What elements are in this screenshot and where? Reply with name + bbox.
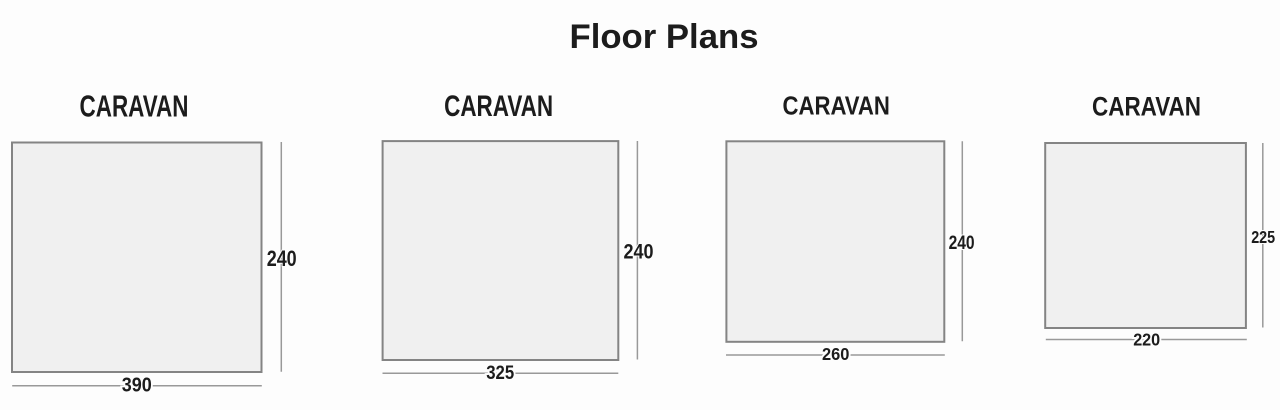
svg-text:240: 240 (949, 233, 975, 254)
svg-text:CARAVAN: CARAVAN (1092, 91, 1201, 122)
svg-text:CARAVAN: CARAVAN (782, 90, 890, 120)
svg-text:220: 220 (1133, 329, 1160, 349)
svg-text:225: 225 (1251, 227, 1275, 247)
svg-text:240: 240 (624, 238, 654, 263)
svg-text:CARAVAN: CARAVAN (444, 90, 553, 123)
svg-text:Floor Plans: Floor Plans (570, 18, 759, 56)
svg-text:240: 240 (267, 246, 297, 271)
svg-text:325: 325 (486, 363, 514, 384)
svg-text:260: 260 (822, 344, 850, 364)
svg-text:CARAVAN: CARAVAN (80, 89, 189, 123)
svg-text:390: 390 (122, 375, 152, 397)
